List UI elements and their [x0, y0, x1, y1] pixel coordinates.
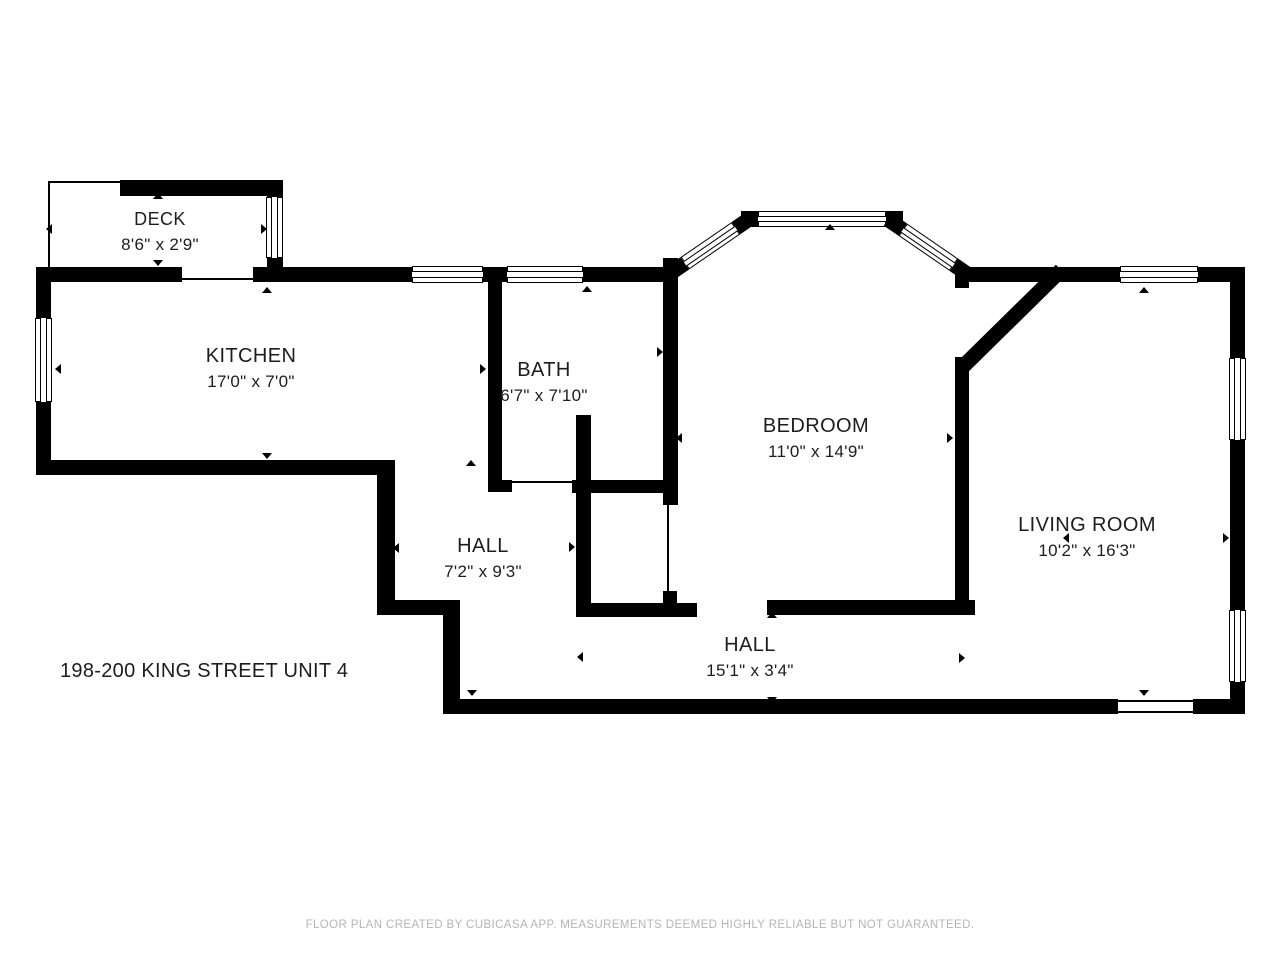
opening-line [667, 505, 669, 593]
window [1229, 358, 1246, 440]
dimension-arrow-icon [1139, 287, 1149, 293]
dimension-arrow-icon [577, 652, 583, 662]
dimension-arrow-icon [959, 653, 965, 663]
room-label-bedroom: BEDROOM 11'0" x 14'9" [763, 413, 869, 465]
dimension-arrow-icon [55, 364, 61, 374]
dimension-arrow-icon [676, 433, 682, 443]
dimension-arrow-icon [466, 460, 476, 466]
room-name: BEDROOM [763, 413, 869, 439]
dimension-arrow-icon [261, 224, 267, 234]
room-label-bath: BATH 6'7" x 7'10" [500, 357, 587, 409]
bay-window-diagonal [666, 211, 755, 279]
room-label-kitchen: KITCHEN 17'0" x 7'0" [206, 343, 297, 395]
window [681, 222, 741, 269]
window [35, 318, 52, 402]
dimension-arrow-icon [393, 543, 399, 553]
room-dimensions: 8'6" x 2'9" [121, 232, 199, 258]
dimension-arrow-icon [947, 433, 953, 443]
opening-line [182, 278, 253, 280]
room-dimensions: 7'2" x 9'3" [444, 559, 522, 585]
window-pane [901, 227, 955, 267]
wall [36, 267, 182, 282]
dimension-arrow-icon [496, 347, 502, 357]
room-dimensions: 15'1" x 3'4" [706, 658, 793, 684]
dimension-arrow-icon [569, 542, 575, 552]
dimension-arrow-icon [657, 347, 663, 357]
wall [377, 460, 395, 615]
wall [120, 180, 283, 196]
dimension-arrow-icon [1223, 533, 1229, 543]
window [266, 197, 283, 258]
window [1229, 610, 1246, 682]
dimension-arrow-icon [153, 260, 163, 266]
room-dimensions: 11'0" x 14'9" [763, 439, 869, 465]
wall [767, 600, 975, 615]
room-dimensions: 17'0" x 7'0" [206, 369, 297, 395]
dimension-arrow-icon [582, 286, 592, 292]
window [507, 266, 583, 283]
wall [443, 699, 1118, 714]
room-label-living-room: LIVING ROOM 10'2" x 16'3" [1018, 512, 1156, 564]
window [758, 211, 886, 227]
wall [443, 600, 460, 714]
wall [1230, 682, 1245, 714]
wall [955, 267, 1120, 282]
wall [576, 603, 697, 617]
room-dimensions: 10'2" x 16'3" [1018, 538, 1156, 564]
wall [576, 415, 591, 617]
room-name: KITCHEN [206, 343, 297, 369]
window [899, 223, 959, 270]
wall [36, 267, 51, 318]
window-pane [758, 216, 886, 222]
wall [36, 460, 395, 475]
opening-line [48, 181, 123, 183]
room-label-hall-upper: HALL 7'2" x 9'3" [444, 533, 522, 585]
opening-line [1118, 711, 1193, 713]
wall [663, 258, 678, 505]
dimension-arrow-icon [825, 602, 835, 608]
room-name: HALL [706, 632, 793, 658]
room-label-deck: DECK 8'6" x 2'9" [121, 206, 199, 258]
window-pane [1234, 610, 1241, 682]
dimension-arrow-icon [767, 612, 777, 618]
window [412, 266, 483, 283]
room-name: HALL [444, 533, 522, 559]
dimension-arrow-icon [480, 364, 486, 374]
dimension-arrow-icon [825, 224, 835, 230]
dimension-arrow-icon [767, 697, 777, 703]
dimension-arrow-icon [46, 224, 52, 234]
dimension-arrow-icon [153, 193, 163, 199]
floor-plan: DECK 8'6" x 2'9" KITCHEN 17'0" x 7'0" BA… [0, 0, 1280, 960]
room-name: BATH [500, 357, 587, 383]
footer-disclaimer: FLOOR PLAN CREATED BY CUBICASA APP. MEAS… [0, 919, 1280, 931]
window-pane [412, 271, 483, 278]
wall [253, 267, 412, 282]
opening-line [1118, 700, 1193, 702]
room-dimensions: 6'7" x 7'10" [500, 383, 587, 409]
dimension-arrow-icon [262, 287, 272, 293]
window-pane [507, 271, 583, 278]
bay-window-diagonal [884, 213, 973, 281]
address-label: 198-200 KING STREET UNIT 4 [60, 660, 348, 683]
wall [955, 357, 969, 615]
dimension-arrow-icon [1139, 690, 1149, 696]
wall [663, 591, 677, 603]
dimension-arrow-icon [262, 453, 272, 459]
wall [1230, 440, 1245, 610]
window-pane [40, 318, 47, 402]
window-pane [683, 225, 737, 265]
dimension-arrow-icon [467, 690, 477, 696]
opening-line [502, 481, 574, 483]
room-label-hall-lower: HALL 15'1" x 3'4" [706, 632, 793, 684]
room-name: DECK [121, 206, 199, 232]
room-name: LIVING ROOM [1018, 512, 1156, 538]
window [1120, 266, 1198, 283]
window-pane [1120, 271, 1198, 278]
wall [1230, 267, 1245, 358]
window-pane [271, 197, 278, 258]
window-pane [1234, 358, 1241, 440]
